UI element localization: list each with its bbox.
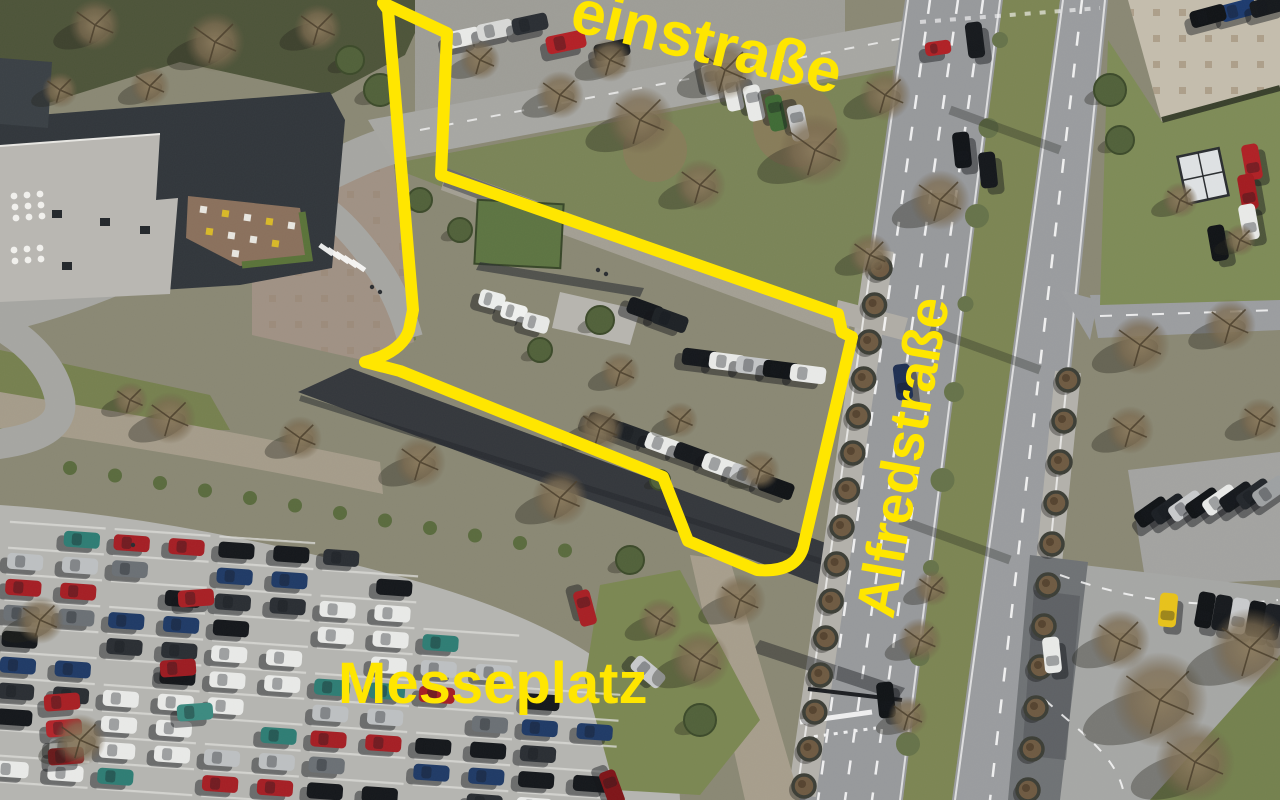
square-label-messeplatz: Messeplatz xyxy=(338,651,647,716)
aerial-photo: einstraße Alfredstraße Messeplatz xyxy=(0,0,1280,800)
aerial-map-view: einstraße Alfredstraße Messeplatz xyxy=(0,0,1280,800)
